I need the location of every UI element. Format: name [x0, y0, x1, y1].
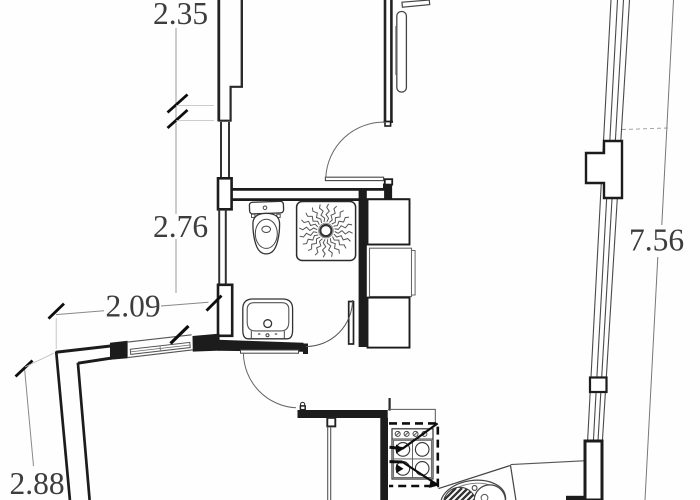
svg-text:2.09: 2.09: [105, 289, 160, 324]
svg-text:2.35: 2.35: [153, 0, 208, 31]
svg-text:2.76: 2.76: [153, 209, 208, 244]
svg-text:2.88: 2.88: [9, 466, 64, 500]
svg-text:7.56: 7.56: [629, 223, 684, 258]
